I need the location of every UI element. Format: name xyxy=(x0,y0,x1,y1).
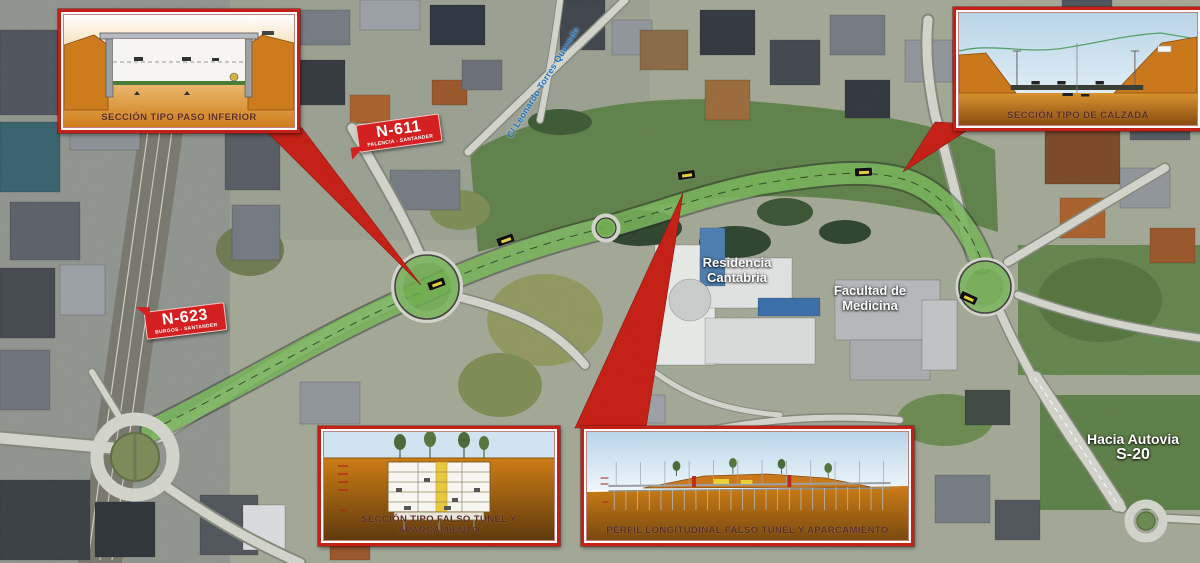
badge-pointer xyxy=(136,307,150,319)
longitudinal-profile-diagram xyxy=(587,432,908,540)
underpass-section-diagram xyxy=(64,15,294,127)
label-line: Residencia xyxy=(672,255,802,270)
badge-pointer xyxy=(351,146,367,160)
label-hacia-autovia-s20: Hacia Autovia S-20 xyxy=(1068,432,1198,462)
label-line: Hacia Autovia xyxy=(1068,432,1198,447)
label-line: Facultad de xyxy=(805,283,935,298)
callout-caption: SECCIÓN TIPO PASO INFERIOR xyxy=(64,112,294,123)
callout-caption: PERFIL LONGITUDINAL FALSO TUNEL Y APARCA… xyxy=(587,525,908,536)
callout-paso-inferior: SECCIÓN TIPO PASO INFERIOR xyxy=(58,9,300,133)
callout-content: PERFIL LONGITUDINAL FALSO TUNEL Y APARCA… xyxy=(586,431,909,541)
pk-marker xyxy=(855,168,872,177)
project-overview-map: C/ Leonardo Torres Quevedo Residencia Ca… xyxy=(0,0,1200,563)
label-line: Cantabria xyxy=(672,270,802,285)
callout-calzada: SECCIÓN TIPO DE CALZADA xyxy=(953,7,1200,131)
label-line: S-20 xyxy=(1068,447,1198,462)
callout-caption: SECCIÓN TIPO FALSO TUNEL Y APARCAMIENTO xyxy=(324,514,554,536)
callout-content: SECCIÓN TIPO PASO INFERIOR xyxy=(63,14,295,128)
callout-content: SECCIÓN TIPO FALSO TUNEL Y APARCAMIENTO xyxy=(323,431,555,541)
callout-content: SECCIÓN TIPO DE CALZADA xyxy=(958,12,1198,126)
callout-caption: SECCIÓN TIPO DE CALZADA xyxy=(959,110,1197,121)
label-line: Medicina xyxy=(805,298,935,313)
callout-falso-tunel: SECCIÓN TIPO FALSO TUNEL Y APARCAMIENTO xyxy=(318,426,560,546)
callout-perfil-longitudinal: PERFIL LONGITUDINAL FALSO TUNEL Y APARCA… xyxy=(581,426,914,546)
label-facultad-medicina: Facultad de Medicina xyxy=(805,283,935,313)
roadway-section-diagram xyxy=(959,13,1197,125)
label-residencia-cantabria: Residencia Cantabria xyxy=(672,255,802,285)
